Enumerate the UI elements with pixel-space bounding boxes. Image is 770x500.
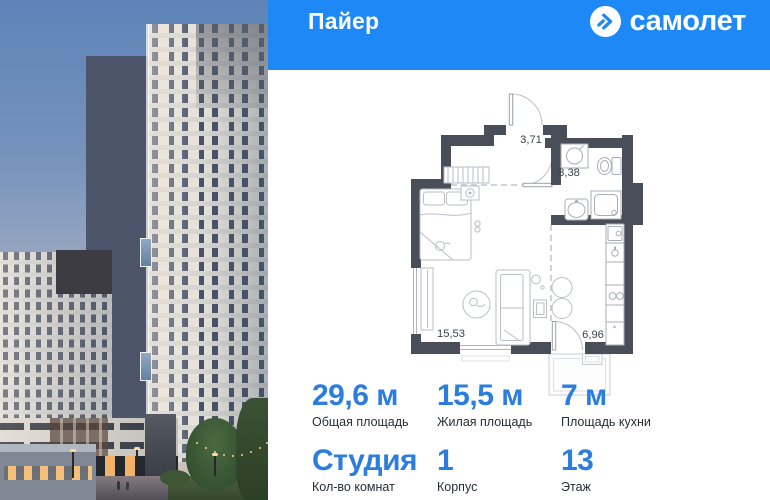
midrise-roof-block [56, 250, 112, 294]
side-shelf [421, 268, 433, 330]
round-rug [463, 291, 490, 318]
brand-name: самолет [629, 5, 746, 38]
lamp-post [72, 452, 74, 478]
bathroom-sink [565, 199, 588, 220]
stat-value: Студия [312, 446, 434, 476]
stat-label: Корпус [437, 480, 559, 494]
stat-label: Общая площадь [312, 415, 434, 429]
string-lights [196, 442, 198, 444]
stat-label: Площадь кухни [561, 415, 683, 429]
kitchen-area-label: 6,96 [582, 329, 604, 341]
sofa [496, 270, 530, 345]
bush [160, 470, 190, 486]
lamp-post [214, 456, 216, 476]
nightstand [461, 186, 479, 200]
stat-value: 7 м [561, 381, 683, 411]
project-title: Пайер [308, 8, 379, 35]
tower-top-floors [196, 24, 268, 108]
lamp-post [136, 450, 138, 476]
stat-living-area: 15,5 м Жилая площадь [437, 381, 559, 429]
stat-value: 13 [561, 446, 683, 476]
stat-floor: 13 Этаж [561, 446, 683, 494]
balcony-block [140, 352, 152, 381]
entrance-door [509, 94, 542, 125]
stat-label: Кол-во комнат [312, 480, 434, 494]
toilet [598, 158, 622, 175]
stat-value: 15,5 м [437, 381, 559, 411]
stat-label: Этаж [561, 480, 683, 494]
hallway-area-label: 3,71 [520, 134, 542, 146]
balcony-door [552, 322, 582, 351]
stat-total-area: 29,6 м Общая площадь [312, 381, 434, 429]
building-photo[interactable] [0, 0, 268, 500]
window-left [411, 268, 421, 334]
listing-card: Пайер самолет [0, 0, 770, 500]
bathroom-area-label: 3,38 [558, 167, 580, 179]
pedestrian [126, 482, 129, 490]
tv-stand [534, 300, 547, 318]
bathroom-door [523, 156, 552, 187]
dining-table [552, 278, 572, 319]
stat-value: 29,6 м [312, 381, 434, 411]
shower [591, 191, 621, 219]
wardrobe [444, 167, 489, 183]
floor-plan-container: 3,71 3,38 15,53 6,96 [408, 82, 670, 402]
living-room-area-label: 15,53 [437, 328, 465, 340]
tree [236, 398, 268, 500]
samolet-logo-icon [590, 6, 621, 37]
stat-value: 1 [437, 446, 559, 476]
brand-logo[interactable]: самолет [590, 5, 746, 38]
annex-lit-windows [4, 466, 92, 480]
stat-label: Жилая площадь [437, 415, 559, 429]
kitchen-counter [606, 224, 624, 345]
entrance-core [145, 414, 176, 478]
pedestrian [117, 481, 120, 490]
apartment-panel: Пайер самолет [268, 0, 770, 500]
floor-lamp [532, 275, 545, 289]
slippers [475, 221, 480, 232]
stat-korpus: 1 Корпус [437, 446, 559, 494]
stat-rooms: Студия Кол-во комнат [312, 446, 434, 494]
panel-header: Пайер самолет [268, 0, 770, 70]
balcony-block [140, 238, 152, 267]
floor-plan: 3,71 3,38 15,53 6,96 [408, 82, 670, 402]
washing-machine [561, 144, 588, 168]
stat-kitchen-area: 7 м Площадь кухни [561, 381, 683, 429]
